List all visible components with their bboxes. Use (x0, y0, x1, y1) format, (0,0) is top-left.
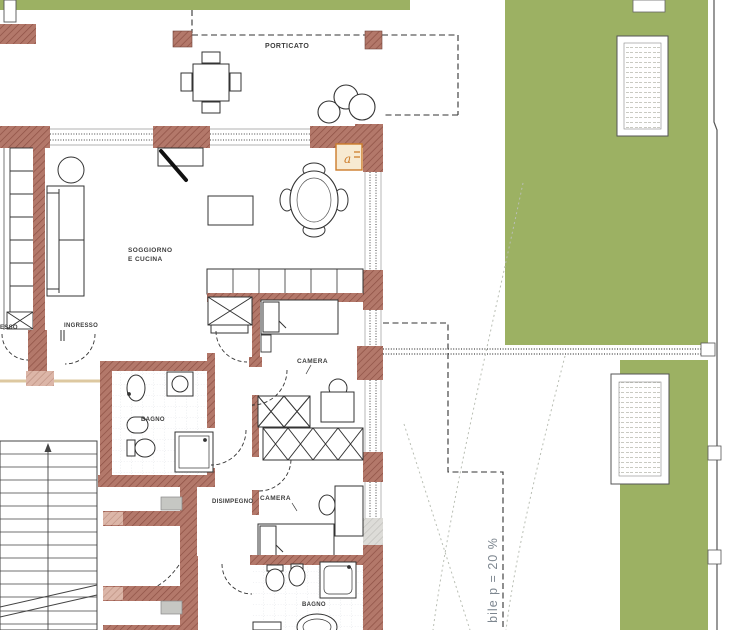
label-disimpegno: DISIMPEGNO (212, 499, 253, 505)
label-leader (306, 365, 311, 374)
entry-pillar (28, 330, 47, 373)
label-soggiorno-1: SOGGIORNO (128, 247, 172, 254)
label-bagno-top: BAGNO (141, 417, 165, 423)
door-arc (2, 334, 28, 360)
shower-icon (175, 432, 213, 472)
sofa-icon (47, 186, 84, 296)
flowerbed-upper (617, 36, 668, 136)
closet-icon (263, 428, 363, 460)
property-boundary (708, 0, 721, 630)
bidet-icon (289, 566, 305, 586)
washing-machine-drum (172, 376, 188, 392)
side-table-icon (58, 157, 84, 183)
square-table-icon (193, 64, 229, 101)
garden-upper-right (505, 0, 708, 345)
toilet-icon (135, 439, 155, 457)
floor-plan: a PORTICATO SOGGIORNO E CUCINA ESSO INGR… (0, 0, 744, 630)
label-slope-note: bile p = 20 % (486, 537, 500, 623)
label-camera-top: CAMERA (297, 358, 328, 365)
label-camera-bottom: CAMERA (260, 495, 291, 502)
label-soggiorno-2: E CUCINA (128, 256, 163, 263)
label-leader (292, 503, 297, 511)
flowerbed-top-partial (633, 0, 665, 12)
lower-left-walls (103, 484, 197, 630)
door-arc (259, 459, 291, 491)
gray-block (161, 601, 182, 614)
door-arc (222, 564, 252, 594)
fence-line (383, 349, 708, 354)
porticato-pillar-left (173, 31, 192, 47)
wardrobe-neighbour (7, 148, 34, 329)
fireplace-icon (158, 148, 203, 180)
coffee-table-icon (208, 196, 253, 225)
label-ingresso: INGRESSO (64, 323, 98, 329)
closet-icon (258, 396, 310, 427)
toilet-icon (266, 569, 284, 591)
entry-pillar-cap (26, 371, 54, 386)
toilet-tank (127, 440, 135, 456)
wall-block-top-left (0, 24, 36, 44)
nightstand-icon (261, 335, 271, 352)
sink-tap (128, 393, 131, 396)
door-jamb (61, 330, 64, 341)
wall-foot (249, 357, 262, 367)
dressing-table-icon (321, 379, 354, 422)
flowerbed-lower (611, 374, 669, 484)
bed-icon (258, 524, 334, 558)
label-porticato: PORTICATO (265, 43, 309, 50)
porticato-table-set (181, 52, 241, 113)
chair-icon (202, 52, 220, 63)
window-marker: a (336, 144, 362, 170)
kitchen-counter (207, 269, 363, 294)
label-bagno-bottom: BAGNO (302, 602, 326, 608)
wardrobe-icon (208, 297, 252, 333)
staircase (0, 441, 97, 630)
window-sill (363, 518, 383, 545)
sink-icon (127, 375, 145, 401)
chair-icon (181, 73, 192, 91)
door-arc (211, 430, 246, 465)
marker-letter: a (344, 152, 351, 166)
chair-icon (230, 73, 241, 91)
lot-boundary-dashed (383, 323, 503, 630)
desk-icon (335, 486, 363, 536)
label-ingresso-partial: ESSO (0, 325, 18, 331)
vanity-icon (253, 622, 281, 630)
porticato-pillar-right (365, 31, 382, 49)
bed-icon (261, 300, 338, 334)
door-arc (65, 334, 95, 364)
fence-end-post (701, 343, 715, 356)
garden-strip-top (0, 0, 410, 10)
porticato-round-tables (318, 85, 375, 123)
pillar-top-left (4, 0, 16, 22)
porticato-boundary-dashed (192, 10, 458, 115)
round-table-icon (349, 94, 375, 120)
floor-plan-svg: a PORTICATO SOGGIORNO E CUCINA ESSO INGR… (0, 0, 744, 630)
door-arc (216, 331, 247, 362)
gray-block (161, 497, 182, 510)
chair-icon (202, 102, 220, 113)
camera-top-wall (252, 297, 260, 359)
dining-table-icon (280, 163, 348, 237)
exterior-wall-top (0, 124, 383, 148)
chair-icon (319, 495, 335, 515)
